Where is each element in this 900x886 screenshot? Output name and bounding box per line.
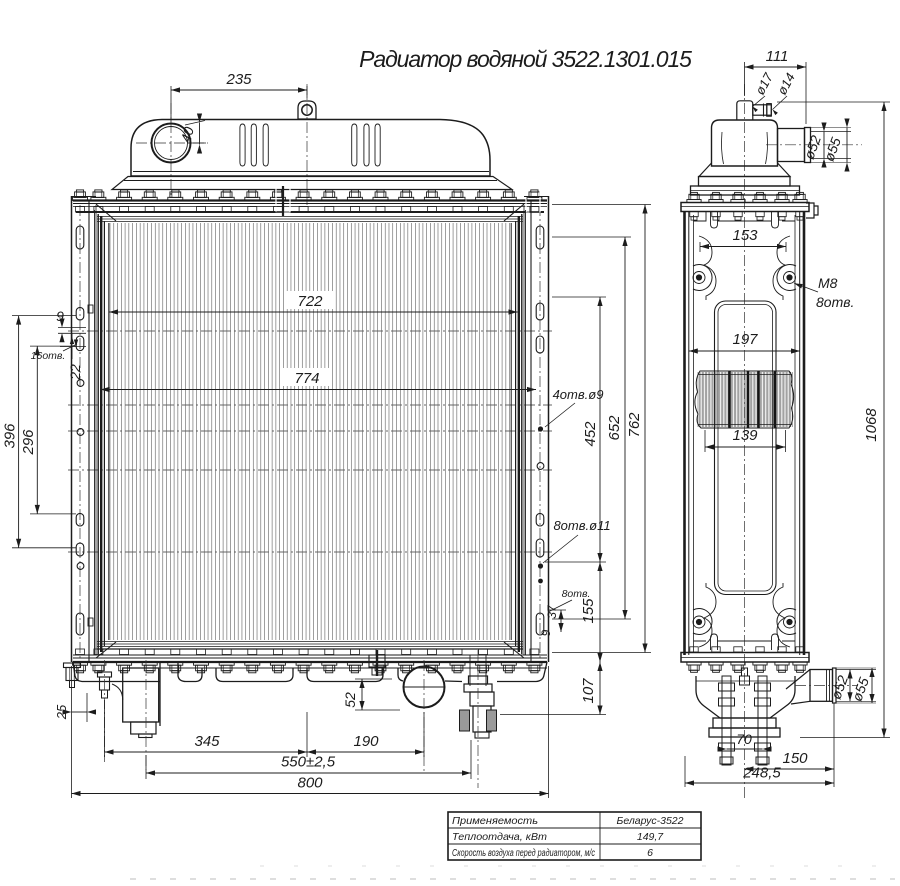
svg-text:111: 111 [766, 48, 789, 65]
svg-text:Применяемость: Применяемость [452, 815, 538, 827]
svg-text:4отв.ø9: 4отв.ø9 [553, 387, 604, 402]
svg-text:774: 774 [294, 370, 319, 387]
svg-text:345: 345 [194, 733, 220, 750]
svg-text:550±2,5: 550±2,5 [281, 754, 336, 771]
svg-text:107: 107 [580, 678, 597, 704]
svg-text:Беларус-3522: Беларус-3522 [617, 815, 684, 827]
svg-text:139: 139 [732, 427, 758, 444]
svg-text:190: 190 [353, 733, 379, 750]
svg-text:722: 722 [297, 293, 323, 310]
svg-text:8отв.: 8отв. [562, 588, 591, 600]
svg-text:296: 296 [20, 429, 37, 456]
svg-text:248,5: 248,5 [742, 765, 781, 782]
svg-text:6: 6 [647, 847, 653, 859]
svg-text:22: 22 [67, 364, 83, 381]
svg-text:9: 9 [539, 629, 553, 636]
svg-text:452: 452 [582, 421, 599, 447]
svg-text:652: 652 [606, 415, 623, 441]
svg-text:8отв.ø11: 8отв.ø11 [553, 518, 610, 533]
svg-text:Скорость воздуха перед радиато: Скорость воздуха перед радиатором, м/с [452, 848, 595, 859]
svg-text:197: 197 [732, 331, 758, 348]
svg-text:70: 70 [736, 731, 752, 747]
svg-text:M8: M8 [818, 275, 838, 291]
svg-text:37: 37 [545, 604, 559, 619]
svg-text:1068: 1068 [863, 408, 880, 442]
svg-text:396: 396 [2, 423, 19, 449]
svg-text:25: 25 [54, 704, 69, 720]
svg-text:149,7: 149,7 [637, 831, 664, 843]
svg-text:8отв.: 8отв. [816, 294, 854, 310]
svg-text:Теплоотдача, кВт: Теплоотдача, кВт [452, 831, 547, 843]
svg-text:150: 150 [782, 750, 808, 767]
svg-text:800: 800 [297, 775, 323, 792]
svg-text:762: 762 [626, 412, 643, 438]
svg-text:153: 153 [732, 227, 758, 244]
svg-text:155: 155 [580, 598, 597, 624]
svg-text:52: 52 [342, 692, 358, 708]
svg-text:235: 235 [225, 71, 252, 88]
svg-text:Радиатор водяной 3522.1301.015: Радиатор водяной 3522.1301.015 [359, 46, 692, 72]
